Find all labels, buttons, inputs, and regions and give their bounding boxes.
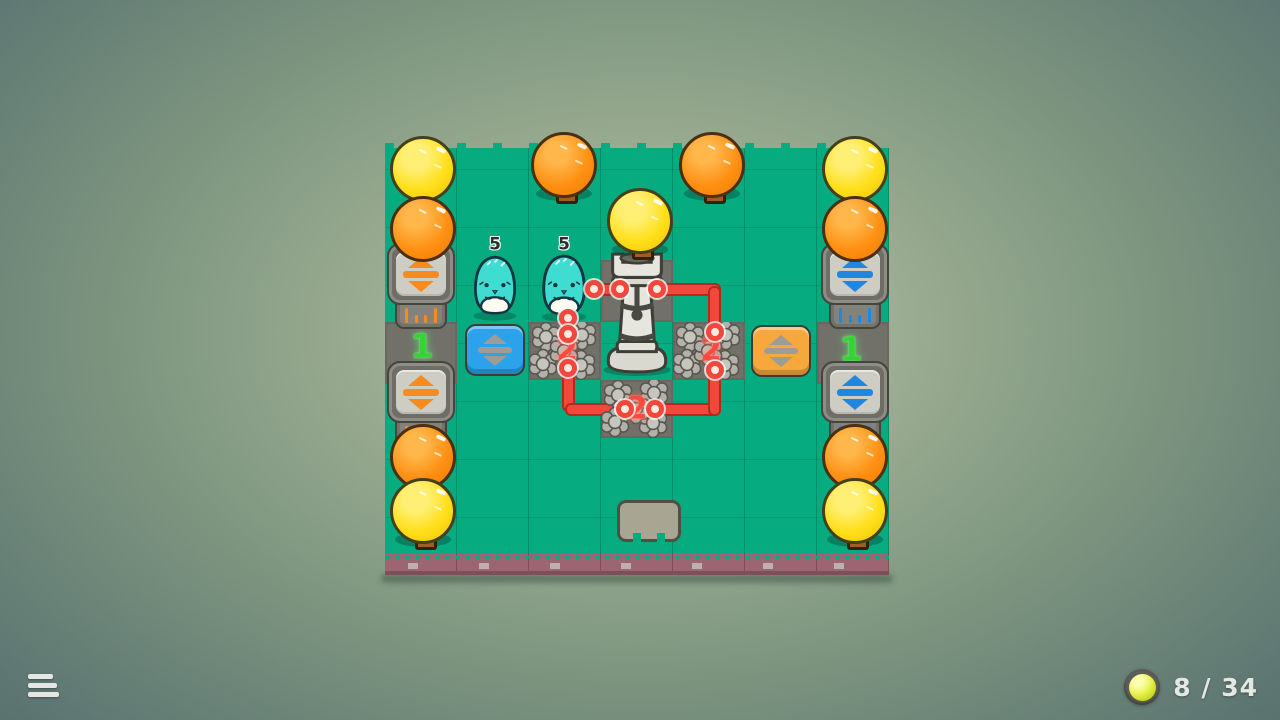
progress-counter-text: 8 / 34 xyxy=(1173,673,1258,702)
creature-left[interactable] xyxy=(467,252,523,322)
castle-tower[interactable] xyxy=(596,248,678,376)
tree-orange xyxy=(679,132,745,198)
creature-left-count: 5 xyxy=(489,237,501,254)
wire-connector xyxy=(559,359,577,377)
menu-button[interactable] xyxy=(28,674,62,700)
hamburger-icon xyxy=(28,692,59,697)
updown-arrows-icon xyxy=(764,335,798,367)
tree-orange xyxy=(390,196,456,262)
wire-connector xyxy=(616,400,634,418)
tree-yellow xyxy=(390,136,456,202)
wire-connector xyxy=(646,400,664,418)
board-top-edge xyxy=(385,143,889,149)
updown-arrows-icon xyxy=(478,334,512,366)
hamburger-icon xyxy=(28,674,53,679)
piston-cap xyxy=(821,361,889,423)
tree-orange xyxy=(822,196,888,262)
stone-slab xyxy=(617,500,681,542)
tree-yellow xyxy=(390,478,456,544)
wire-connector xyxy=(706,323,724,341)
wire-connector xyxy=(611,280,629,298)
progress-counter: 8 / 34 xyxy=(1124,669,1258,705)
button-orange[interactable] xyxy=(751,325,811,377)
orb-icon xyxy=(1124,669,1160,705)
wire-connector xyxy=(706,361,724,379)
grass-fringe xyxy=(385,553,889,559)
tree-yellow xyxy=(607,188,673,254)
hamburger-icon xyxy=(28,683,57,688)
game-stage: 2 2 2 1 1 xyxy=(0,0,1280,720)
dirt-stones xyxy=(391,563,883,569)
updown-arrows-icon xyxy=(403,375,439,410)
button-blue[interactable] xyxy=(465,324,525,376)
piston-cap xyxy=(387,361,455,423)
tree-orange xyxy=(531,132,597,198)
tree-yellow xyxy=(822,478,888,544)
tree-yellow xyxy=(822,136,888,202)
wire-connector xyxy=(648,280,666,298)
lane-left-count: 1 xyxy=(411,330,434,363)
wire-connector xyxy=(585,280,603,298)
wire-connector xyxy=(559,325,577,343)
board-shadow xyxy=(381,574,893,583)
creature-right-count: 5 xyxy=(558,237,570,254)
updown-arrows-icon xyxy=(837,375,873,410)
game-board: 2 2 2 1 1 xyxy=(385,148,889,575)
dirt-band xyxy=(385,554,889,575)
